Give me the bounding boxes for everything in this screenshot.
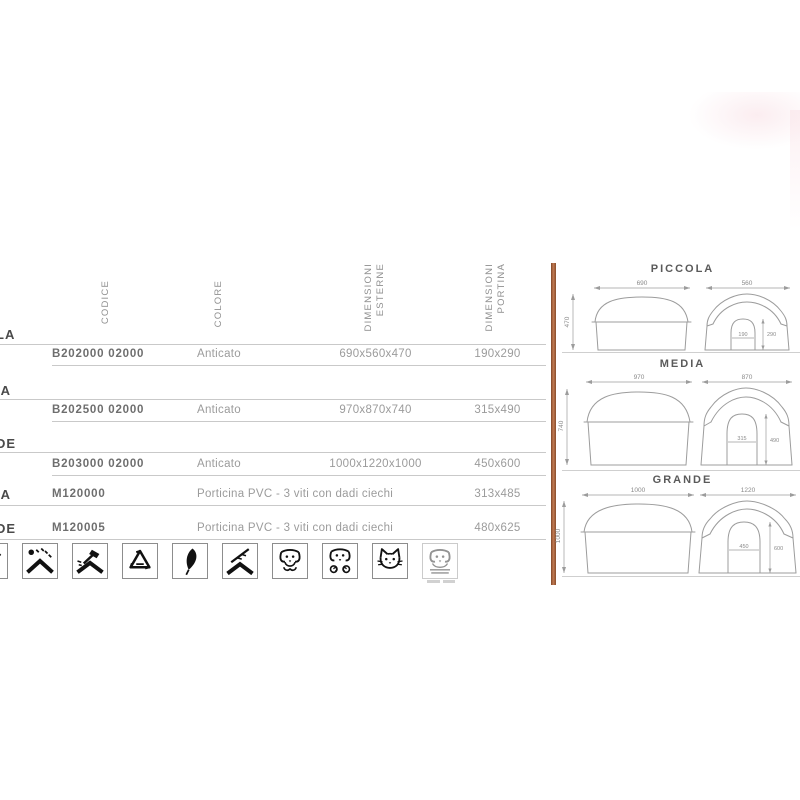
media-front-view: 870 315 490 xyxy=(694,372,798,468)
front-shape xyxy=(701,388,792,465)
section-divider xyxy=(562,576,800,577)
row-label: DE xyxy=(0,521,16,536)
faded-dog-icon xyxy=(422,543,458,579)
front-shape xyxy=(705,294,789,350)
dim-label-door-height: 290 xyxy=(767,332,776,338)
cell-dimensioni-portina: 450x600 xyxy=(455,458,540,470)
branch-roof-icon-glyph xyxy=(225,546,255,576)
row-divider xyxy=(0,505,546,506)
row-divider xyxy=(0,399,546,400)
dim-label-height: 470 xyxy=(564,316,571,327)
cell-codice: B202500 02000 xyxy=(52,404,144,416)
side-profile-shape xyxy=(592,297,691,350)
row-divider xyxy=(0,539,546,540)
cell-colore: Anticato xyxy=(197,458,241,470)
row-label: DE xyxy=(0,436,16,451)
feather-icon-glyph xyxy=(175,546,205,576)
cell-codice: M120000 xyxy=(52,488,106,500)
cell-codice: M120005 xyxy=(52,522,106,534)
dim-label-door-width: 315 xyxy=(737,436,746,442)
cell-dimensioni-esterne: 970x870x740 xyxy=(318,404,433,416)
dim-label-width: 870 xyxy=(742,374,753,381)
column-header-dimensioni-portina-line2: PORTINA xyxy=(496,263,507,313)
dog-face-icon-glyph xyxy=(275,546,305,576)
dog-paws-icon-glyph xyxy=(325,546,355,576)
dim-label-door-height: 600 xyxy=(774,546,783,552)
section-divider xyxy=(562,352,800,353)
section-title-grande: GRANDE xyxy=(565,474,800,486)
row-label: LA xyxy=(0,327,15,342)
row-divider xyxy=(52,421,546,422)
clipped-icon-glyph xyxy=(0,546,5,576)
dim-label-width: 1000 xyxy=(631,487,646,494)
section-title-piccola: PICCOLA xyxy=(565,263,800,275)
row-divider xyxy=(52,365,546,366)
section-title-media: MEDIA xyxy=(565,358,800,370)
faded-dog-icon-glyph xyxy=(425,546,455,576)
feather-icon xyxy=(172,543,208,579)
cat-face-icon xyxy=(372,543,408,579)
piccola-side-view: 690 470 xyxy=(562,278,697,352)
column-header-dimensioni-esterne-line1: DIMENSIONI xyxy=(363,263,374,331)
dim-label-width: 690 xyxy=(637,280,648,287)
row-divider xyxy=(0,452,546,453)
media-side-view: 970 740 xyxy=(556,372,698,468)
row-label: IA xyxy=(0,487,11,502)
dim-label-door-width: 450 xyxy=(739,544,748,550)
dim-label-door-height: 490 xyxy=(770,438,779,444)
dim-label-width: 560 xyxy=(742,280,753,287)
recycling-icon-glyph xyxy=(125,546,155,576)
branch-roof-icon xyxy=(222,543,258,579)
cell-colore: Anticato xyxy=(197,348,241,360)
cell-dimensioni-esterne: 690x560x470 xyxy=(318,348,433,360)
cell-codice: B203000 02000 xyxy=(52,458,144,470)
illegible-caption xyxy=(427,580,455,583)
dog-face-icon xyxy=(272,543,308,579)
cell-colore: Porticina PVC - 3 viti con dadi ciechi xyxy=(197,522,393,534)
column-header-dimensioni-esterne-line2: ESTERNE xyxy=(375,263,386,316)
grande-front-view: 1220 450 600 xyxy=(692,486,800,576)
dog-paws-icon xyxy=(322,543,358,579)
dim-label-width: 970 xyxy=(634,374,645,381)
cell-colore: Porticina PVC - 3 viti con dadi ciechi xyxy=(197,488,393,500)
faint-artifact-streak xyxy=(790,110,800,230)
clipped-icon xyxy=(0,543,8,579)
row-divider xyxy=(0,344,546,345)
cell-codice: B202000 02000 xyxy=(52,348,144,360)
hammer-assembly-icon-glyph xyxy=(75,546,105,576)
cell-dimensioni-esterne: 1000x1220x1000 xyxy=(318,458,433,470)
feature-icons-row xyxy=(0,543,458,579)
cell-dimensioni-portina: 315x490 xyxy=(455,404,540,416)
cell-dimensioni-portina: 190x290 xyxy=(455,348,540,360)
weather-uv-icon-glyph xyxy=(25,546,55,576)
front-shape xyxy=(699,501,796,573)
column-header-codice: CODICE xyxy=(100,280,111,324)
side-profile-shape xyxy=(581,504,695,573)
faint-artifact xyxy=(688,92,800,150)
cell-colore: Anticato xyxy=(197,404,241,416)
dim-label-door-width: 190 xyxy=(738,332,747,338)
cell-dimensioni-portina: 313x485 xyxy=(455,488,540,500)
hammer-assembly-icon xyxy=(72,543,108,579)
column-header-colore: COLORE xyxy=(213,280,224,327)
column-header-dimensioni-portina-line1: DIMENSIONI xyxy=(484,263,495,331)
grande-side-view: 1000 1000 xyxy=(554,486,700,576)
section-divider xyxy=(562,470,800,471)
recycling-icon xyxy=(122,543,158,579)
cat-face-icon-glyph xyxy=(375,546,405,576)
catalog-page: CODICE COLORE DIMENSIONI ESTERNE DIMENSI… xyxy=(0,0,800,800)
weather-uv-icon xyxy=(22,543,58,579)
dim-label-width: 1220 xyxy=(741,487,756,494)
cell-dimensioni-portina: 480x625 xyxy=(455,522,540,534)
piccola-front-view: 560 190 290 xyxy=(696,278,798,352)
row-divider xyxy=(52,475,546,476)
dim-label-height: 740 xyxy=(558,420,565,431)
dim-label-height: 1000 xyxy=(555,528,562,543)
side-profile-shape xyxy=(584,392,693,465)
row-label: IA xyxy=(0,383,11,398)
